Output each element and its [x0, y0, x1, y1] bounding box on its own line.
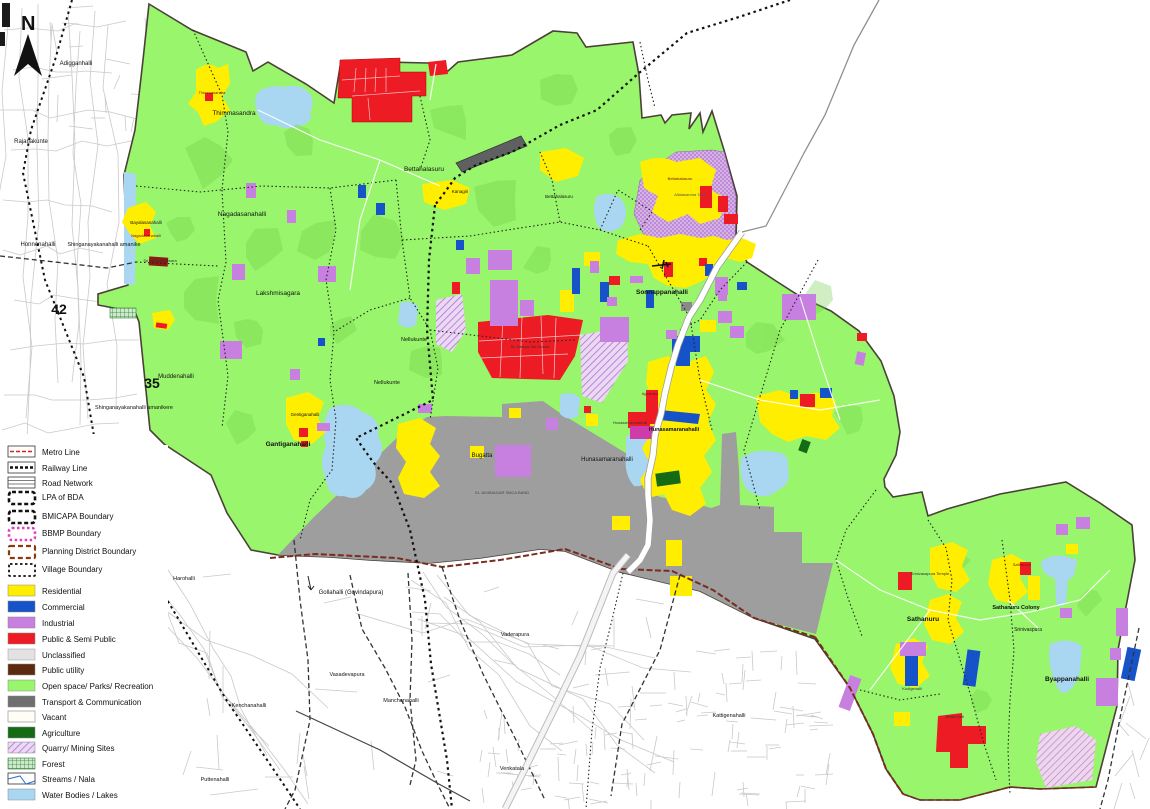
svg-text:42: 42	[51, 301, 67, 317]
svg-text:Railway Line: Railway Line	[42, 464, 88, 473]
svg-text:Open space/ Parks/ Recreation: Open space/ Parks/ Recreation	[42, 682, 153, 691]
svg-text:Harohalli: Harohalli	[173, 576, 195, 582]
svg-text:Nagadasanahalli: Nagadasanahalli	[131, 233, 161, 238]
svg-text:Agriculture: Agriculture	[42, 729, 81, 738]
svg-text:Hunasamaranahalli: Hunasamaranahalli	[613, 420, 648, 425]
svg-text:Venkatala: Venkatala	[500, 766, 525, 772]
svg-text:Puttenahalli: Puttenahalli	[201, 777, 230, 783]
svg-text:Muddenahalli: Muddenahalli	[158, 374, 194, 380]
svg-text:Rajanakunte: Rajanakunte	[14, 139, 48, 145]
svg-text:Gentiganahalli: Gentiganahalli	[291, 412, 320, 417]
svg-text:Thimmasandra: Thimmasandra	[212, 110, 256, 117]
svg-text:Nellukunte: Nellukunte	[374, 380, 400, 386]
svg-text:SL JAYANAGAR SMCA BAND: SL JAYANAGAR SMCA BAND	[475, 490, 529, 495]
svg-text:Srinivaspura: Srinivaspura	[1014, 627, 1042, 633]
svg-text:Kattigenahalli: Kattigenahalli	[712, 713, 745, 719]
svg-text:Thimmasandra: Thimmasandra	[199, 90, 226, 95]
svg-text:Gollahalli (Govindapura): Gollahalli (Govindapura)	[319, 590, 384, 596]
svg-text:Sathanuru: Sathanuru	[907, 616, 939, 623]
svg-text:Sathanuru Colony: Sathanuru Colony	[992, 605, 1040, 611]
svg-text:Shinganayakanahalli amanike: Shinganayakanahalli amanike	[67, 242, 140, 248]
svg-text:Kenchanahalli: Kenchanahalli	[232, 703, 267, 709]
svg-text:Bettahalasuru: Bettahalasuru	[668, 176, 693, 181]
svg-text:Bugatta: Bugatta	[472, 453, 493, 459]
svg-text:Sri Sathya Sai Grama: Sri Sathya Sai Grama	[511, 344, 550, 349]
svg-text:Sonnappanahalli: Sonnappanahalli	[636, 289, 688, 296]
svg-text:Shinganayakanahalli amanikere: Shinganayakanahalli amanikere	[95, 405, 173, 411]
svg-text:LPA of BDA: LPA of BDA	[42, 493, 84, 502]
svg-text:35: 35	[144, 375, 160, 391]
svg-text:Sri Venkateshwara: Sri Venkateshwara	[143, 258, 177, 263]
svg-text:Agrahara: Agrahara	[642, 391, 659, 396]
svg-text:Byappanahalli: Byappanahalli	[1045, 676, 1089, 683]
svg-text:Public & Semi Public: Public & Semi Public	[42, 635, 116, 644]
svg-text:BMICAPA Boundary: BMICAPA Boundary	[42, 512, 113, 521]
svg-text:Srinivasapura Temple: Srinivasapura Temple	[911, 571, 950, 576]
svg-text:Sathanuru: Sathanuru	[1013, 562, 1031, 567]
svg-text:Kanagiri: Kanagiri	[452, 189, 469, 194]
svg-text:Residential: Residential	[42, 587, 82, 596]
svg-text:Bayalasanahalli: Bayalasanahalli	[130, 220, 162, 225]
svg-text:Nellukunte: Nellukunte	[401, 337, 427, 343]
svg-text:Industrial: Industrial	[42, 619, 75, 628]
svg-text:Bettahalasuru: Bettahalasuru	[404, 166, 444, 173]
svg-text:Quarry/ Mining Sites: Quarry/ Mining Sites	[42, 744, 114, 753]
svg-text:Transport & Communication: Transport & Communication	[42, 698, 141, 707]
svg-text:Water Bodies / Lakes: Water Bodies / Lakes	[42, 791, 118, 800]
svg-text:Hunasamaranahalli: Hunasamaranahalli	[649, 427, 700, 433]
svg-text:Hunasamaranahalli: Hunasamaranahalli	[581, 457, 633, 463]
svg-text:Kodigehalli: Kodigehalli	[902, 686, 922, 691]
svg-text:Commercial: Commercial	[42, 603, 85, 612]
svg-text:Metro Line: Metro Line	[42, 448, 80, 457]
svg-text:Public utility: Public utility	[42, 666, 84, 675]
svg-text:Betta Halli: Betta Halli	[946, 714, 964, 719]
svg-text:Adigganhalli: Adigganhalli	[60, 61, 93, 67]
svg-text:Vacant: Vacant	[42, 713, 67, 722]
svg-text:Road Network: Road Network	[42, 479, 94, 488]
svg-text:Gantiganahalli: Gantiganahalli	[266, 441, 311, 448]
svg-text:Nagadasanahalli: Nagadasanahalli	[218, 211, 266, 218]
svg-text:Vaderapura: Vaderapura	[501, 632, 530, 638]
svg-text:Vasadevapura: Vasadevapura	[329, 672, 365, 678]
svg-text:Unclassified: Unclassified	[42, 651, 85, 660]
svg-text:Lakshmisagara: Lakshmisagara	[256, 290, 300, 297]
svg-text:Streams / Nala: Streams / Nala	[42, 775, 95, 784]
svg-text:Forest: Forest	[42, 760, 65, 769]
svg-text:Bettahalasuru: Bettahalasuru	[545, 194, 573, 199]
svg-text:Honnenahalli: Honnenahalli	[20, 242, 55, 248]
svg-text:Planning District Boundary: Planning District Boundary	[42, 547, 136, 556]
svg-text:Manchenahalli: Manchenahalli	[383, 698, 418, 704]
svg-text:Village Boundary: Village Boundary	[42, 565, 102, 574]
svg-text:N: N	[21, 13, 35, 35]
svg-text:BBMP Boundary: BBMP Boundary	[42, 529, 101, 538]
svg-text:Allalasandra Tank: Allalasandra Tank	[674, 192, 706, 197]
